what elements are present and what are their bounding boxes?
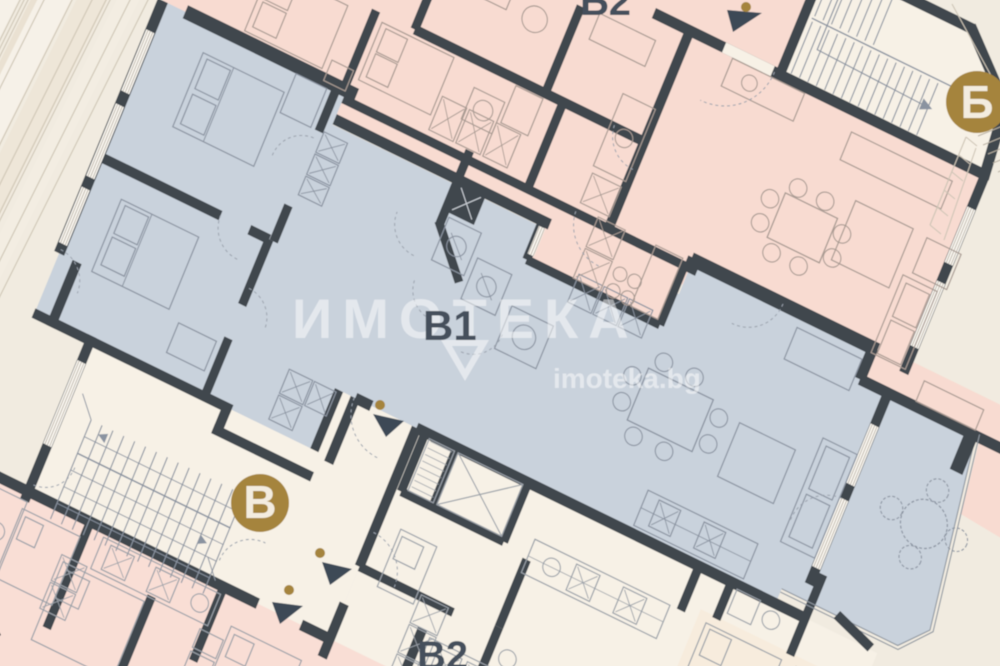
svg-text:Б: Б — [960, 76, 993, 128]
svg-text:B1: B1 — [423, 302, 477, 349]
svg-text:B: B — [243, 476, 276, 528]
svg-text:Б2: Б2 — [580, 0, 631, 24]
svg-text:B2: B2 — [417, 634, 468, 666]
svg-text:imoteka.bg: imoteka.bg — [553, 363, 701, 394]
